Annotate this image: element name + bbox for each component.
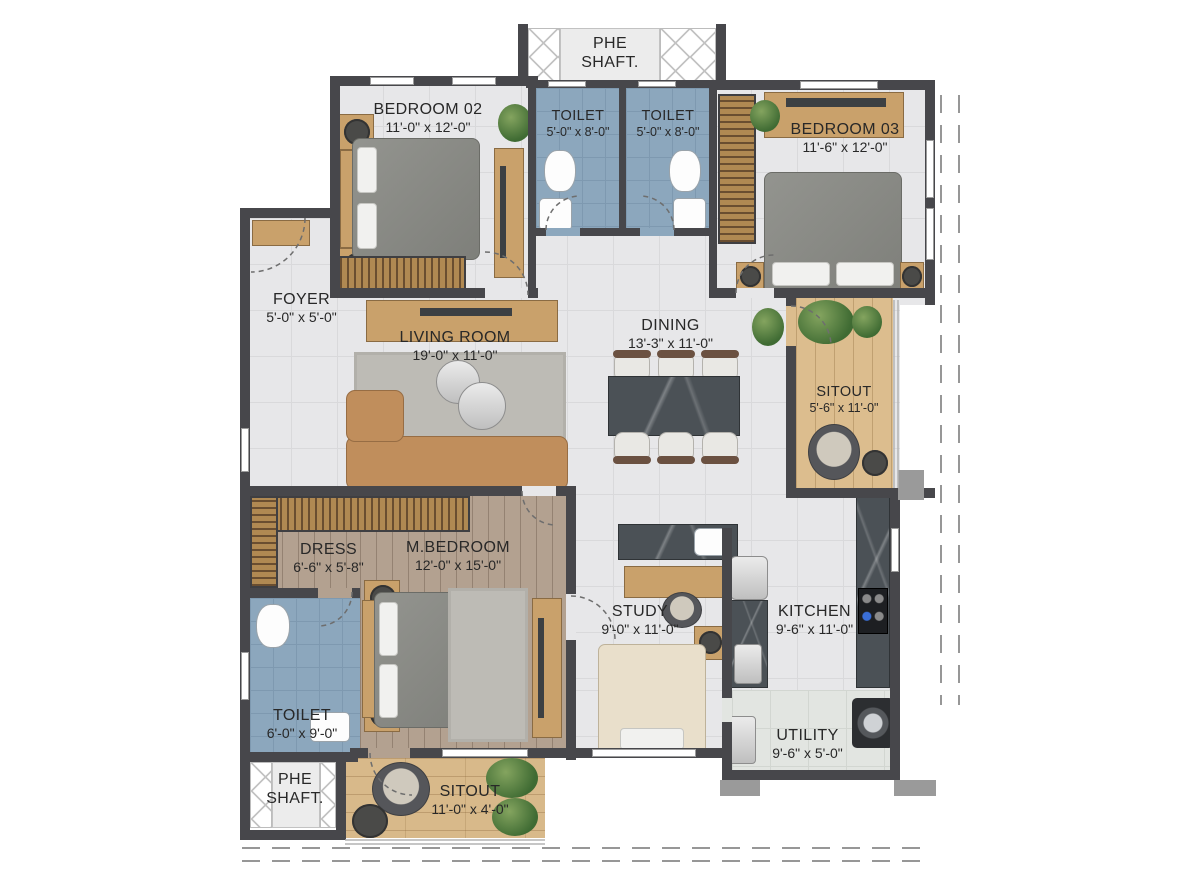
bedroom03-name: BEDROOM 03: [765, 120, 925, 139]
study-bed-pillow: [620, 728, 684, 750]
label-utility: UTILITY 9'-6" x 5'-0": [745, 726, 870, 762]
bedroom02-dims: 11'-0" x 12'-0": [348, 119, 508, 136]
master-tv: [538, 618, 544, 718]
master-pillow-2: [379, 664, 398, 718]
sitout-bottom-table: [352, 804, 388, 838]
label-master-bedroom: M.BEDROOM 12'-0" x 15'-0": [388, 538, 528, 574]
window-bedroom03-right-1: [926, 140, 934, 198]
toilet-b-name: TOILET: [624, 108, 712, 125]
bedroom02-name: BEDROOM 02: [348, 100, 508, 119]
toilet-master-wc: [256, 604, 290, 648]
sitout-bottom-dims: 11'-0" x 4'-0": [404, 801, 536, 818]
dress-dims: 6'-6" x 5'-8": [276, 559, 381, 576]
door-gap-toilet-a: [546, 228, 580, 236]
living-name: LIVING ROOM: [380, 328, 530, 347]
window-bedroom02-2: [452, 77, 496, 85]
bedroom03-pillow-1: [772, 262, 830, 286]
door-gap-sitout-right: [786, 306, 796, 346]
bedroom02-tv-unit: [494, 148, 524, 278]
door-gap-utility: [722, 698, 732, 722]
dining-dims: 13'-3" x 11'-0": [598, 335, 743, 352]
wall-utility-bottom: [722, 770, 900, 780]
living-coffee-table-2: [458, 382, 506, 430]
window-toilet-a: [548, 81, 586, 87]
label-bedroom02: BEDROOM 02 11'-0" x 12'-0": [348, 100, 508, 136]
sitout-right-plant-1-icon: [798, 300, 854, 344]
dress-wardrobe-left: [250, 496, 278, 588]
label-phe-top: PHE SHAFT.: [560, 34, 660, 72]
kitchen-sink: [734, 644, 762, 684]
phe-top-line1: PHE: [560, 34, 660, 53]
window-kitchen-right: [891, 528, 899, 572]
label-sitout-bottom: SITOUT 11'-0" x 4'-0": [404, 782, 536, 818]
sitout-right-chair: [808, 424, 860, 480]
pillar-right: [898, 470, 924, 500]
label-dining: DINING 13'-3" x 11'-0": [598, 316, 743, 352]
window-study-bottom: [592, 749, 696, 757]
bedroom03-lamp-right: [902, 266, 922, 287]
master-tv-unit: [532, 598, 562, 738]
outside-mask-right: [900, 305, 935, 780]
label-bedroom03: BEDROOM 03 11'-6" x 12'-0": [765, 120, 925, 156]
window-bedroom02-1: [370, 77, 414, 85]
living-sofa-corner: [346, 390, 404, 442]
bedroom02-tv: [500, 166, 506, 258]
toilet-a-basin: [539, 198, 572, 231]
bedroom03-dims: 11'-6" x 12'-0": [765, 139, 925, 156]
wall-toilet-divider: [619, 80, 626, 236]
window-master-bottom: [442, 749, 528, 757]
window-living-left: [241, 428, 249, 472]
dining-chair-6: [702, 432, 738, 462]
phe-bottom-line1: PHE: [254, 770, 336, 789]
dining-plant-icon: [752, 308, 784, 346]
master-pillow-1: [379, 602, 398, 656]
sitout-right-dims: 5'-6" x 11'-0": [798, 401, 890, 416]
door-gap-sitout-bottom: [368, 748, 410, 758]
door-gap-bedroom03: [736, 288, 774, 298]
door-gap-bedroom02: [485, 288, 528, 298]
master-bedroom-name: M.BEDROOM: [388, 538, 528, 557]
wall-phe-bottom-right: [336, 752, 346, 840]
bedroom03-tv: [786, 98, 886, 107]
label-sitout-right: SITOUT 5'-6" x 11'-0": [798, 384, 890, 416]
wall-kitchen-left: [722, 528, 732, 780]
label-study: STUDY 9'-0" x 11'-0": [584, 602, 696, 638]
bedroom03-pillow-2: [836, 262, 894, 286]
dining-name: DINING: [598, 316, 743, 335]
foyer-dims: 5'-0" x 5'-0": [244, 309, 359, 326]
door-gap-toilet-b: [640, 228, 674, 236]
window-toilet-master-left: [241, 652, 249, 700]
pillar-bottom-2: [894, 780, 936, 796]
master-rug: [448, 588, 528, 742]
toilet-a-name: TOILET: [534, 108, 622, 125]
dress-wardrobe-top: [264, 496, 470, 532]
kitchen-name: KITCHEN: [742, 602, 887, 621]
wall-bedroom02-top: [330, 76, 538, 86]
wall-phe-bottom: [240, 830, 344, 840]
study-name: STUDY: [584, 602, 696, 621]
bedroom02-pillow-2: [357, 203, 377, 249]
door-gap-study: [566, 594, 576, 640]
living-dims: 19'-0" x 11'-0": [380, 347, 530, 364]
window-bedroom03-top: [800, 81, 878, 89]
toilet-b-basin: [673, 198, 706, 231]
toilet-a-wc: [544, 150, 576, 192]
toilet-a-dims: 5'-0" x 8'-0": [534, 125, 622, 140]
pillar-bottom-1: [720, 780, 760, 796]
kitchen-fridge: [730, 556, 768, 600]
utility-name: UTILITY: [745, 726, 870, 745]
label-dress: DRESS 6'-6" x 5'-8": [276, 540, 381, 576]
bedroom03-lamp-left: [740, 266, 761, 287]
dining-chair-5: [658, 432, 694, 462]
label-phe-bottom: PHE SHAFT.: [254, 770, 336, 808]
kitchen-dims: 9'-6" x 11'-0": [742, 621, 887, 638]
toilet-b-dims: 5'-0" x 8'-0": [624, 125, 712, 140]
bedroom02-pillow-1: [357, 147, 377, 193]
dining-chair-4: [614, 432, 650, 462]
sitout-right-plant-2-icon: [852, 306, 882, 338]
phe-top-hatch-right: [660, 28, 716, 82]
window-bedroom03-right-2: [926, 208, 934, 260]
door-gap-master: [522, 486, 556, 496]
phe-top-hatch-left: [528, 28, 560, 82]
label-toilet-master: TOILET 6'-0" x 9'-0": [248, 706, 356, 742]
master-bedroom-dims: 12'-0" x 15'-0": [388, 557, 528, 574]
phe-bottom-line2: SHAFT.: [254, 789, 336, 808]
toilet-master-dims: 6'-0" x 9'-0": [248, 725, 356, 742]
sitout-right-name: SITOUT: [798, 384, 890, 401]
utility-dims: 9'-6" x 5'-0": [745, 745, 870, 762]
living-sofa-main: [346, 436, 568, 490]
sitout-right-side-table: [862, 450, 888, 476]
wall-foyer-top: [240, 208, 340, 218]
wall-phe-top-right: [716, 24, 726, 84]
label-living: LIVING ROOM 19'-0" x 11'-0": [380, 328, 530, 364]
wall-phe-top-left: [518, 24, 528, 84]
label-toilet-a: TOILET 5'-0" x 8'-0": [534, 108, 622, 140]
label-foyer: FOYER 5'-0" x 5'-0": [244, 290, 359, 326]
outside-mask-topleft: [245, 80, 330, 208]
foyer-name: FOYER: [244, 290, 359, 309]
toilet-master-name: TOILET: [248, 706, 356, 725]
sitout-bottom-name: SITOUT: [404, 782, 536, 801]
label-toilet-b: TOILET 5'-0" x 8'-0": [624, 108, 712, 140]
study-dims: 9'-0" x 11'-0": [584, 621, 696, 638]
dress-name: DRESS: [276, 540, 381, 559]
dining-table: [608, 376, 740, 436]
foyer-console: [252, 220, 310, 246]
door-gap-toilet-master: [318, 588, 352, 598]
label-kitchen: KITCHEN 9'-6" x 11'-0": [742, 602, 887, 638]
wall-bedroom02-left: [330, 76, 340, 298]
phe-top-line2: SHAFT.: [560, 53, 660, 72]
toilet-b-wc: [669, 150, 701, 192]
floor-plan: PHE SHAFT. BEDROOM 02 11'-0" x 12'-0" TO…: [0, 0, 1200, 892]
window-toilet-b: [638, 81, 676, 87]
living-tv: [420, 308, 512, 316]
